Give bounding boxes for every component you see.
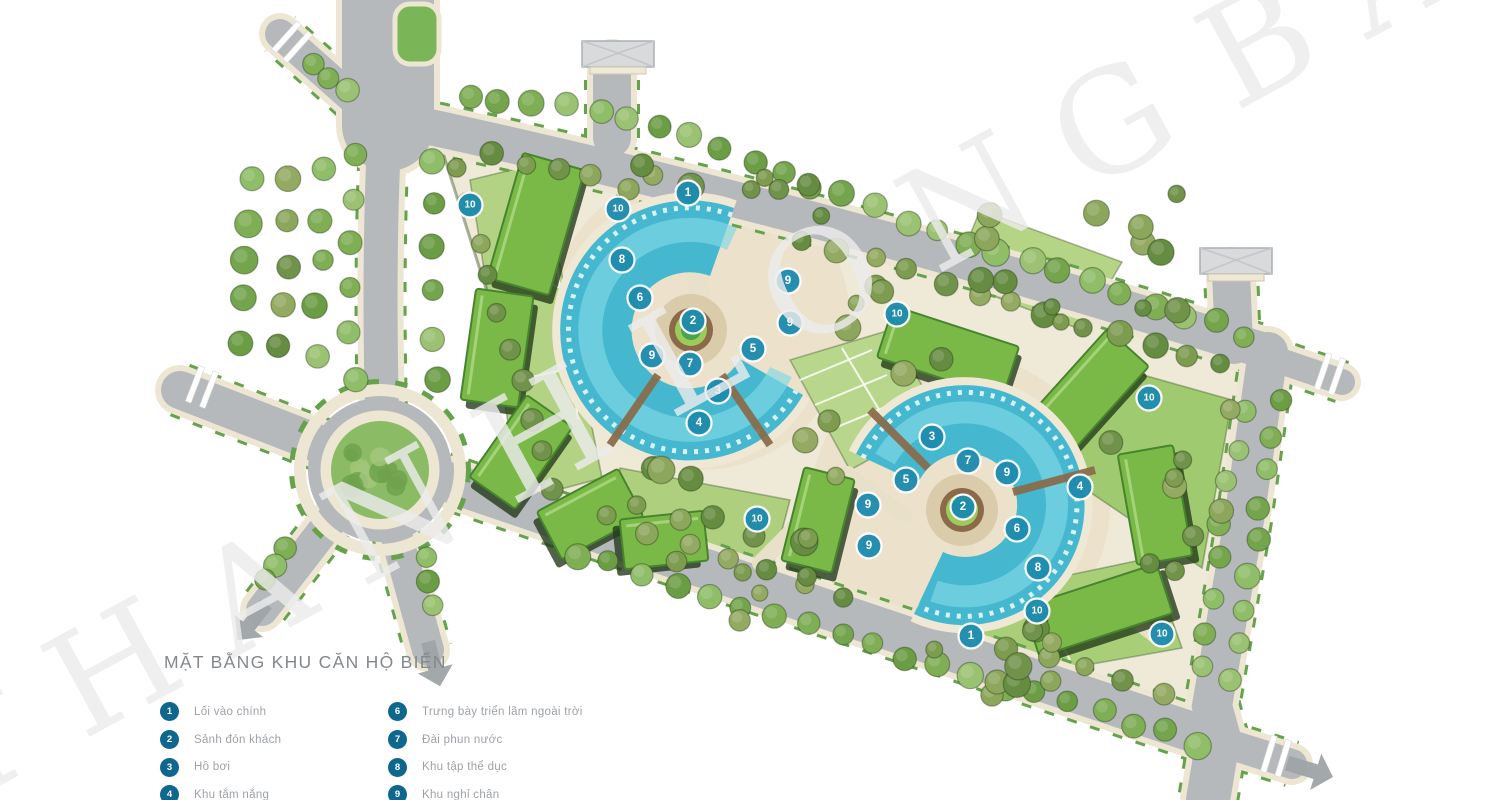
svg-text:9: 9: [866, 540, 872, 552]
svg-text:6: 6: [1014, 523, 1020, 535]
svg-text:3: 3: [929, 431, 935, 443]
plan-marker-9: 9: [857, 534, 882, 559]
plan-marker-1: 1: [676, 181, 701, 206]
svg-text:9: 9: [1004, 467, 1010, 479]
svg-text:10: 10: [1143, 393, 1155, 404]
plan-marker-10: 10: [1150, 622, 1175, 647]
svg-text:7: 7: [965, 455, 971, 467]
svg-text:2: 2: [960, 501, 966, 513]
plan-marker-7: 7: [956, 449, 981, 474]
plan-marker-2: 2: [951, 495, 976, 520]
svg-text:10: 10: [1031, 606, 1043, 617]
svg-text:10: 10: [751, 514, 763, 525]
plan-marker-9: 9: [856, 493, 881, 518]
svg-text:1: 1: [685, 187, 692, 199]
gate-pavilion-north: [582, 41, 654, 74]
plan-marker-1: 1: [959, 624, 984, 649]
gate-pavilion-east: [1200, 248, 1272, 281]
svg-text:4: 4: [1077, 481, 1084, 493]
svg-text:8: 8: [619, 254, 626, 266]
svg-text:10: 10: [464, 200, 476, 211]
plan-marker-8: 8: [610, 248, 635, 273]
site-plan-image: 101018699259734101037954291069810110 THA…: [0, 0, 1500, 800]
plan-marker-4: 4: [1068, 475, 1093, 500]
svg-text:1: 1: [968, 630, 975, 642]
svg-text:9: 9: [865, 499, 871, 511]
svg-text:5: 5: [903, 474, 910, 486]
svg-text:10: 10: [612, 204, 624, 215]
svg-text:10: 10: [1156, 629, 1168, 640]
site-plan-page: 101018699259734101037954291069810110 THA…: [0, 0, 1500, 800]
plan-marker-10: 10: [458, 193, 483, 218]
svg-text:8: 8: [1035, 562, 1042, 574]
plan-marker-10: 10: [745, 507, 770, 532]
plan-marker-9: 9: [995, 461, 1020, 486]
plan-marker-5: 5: [894, 468, 919, 493]
plan-marker-10: 10: [1025, 599, 1050, 624]
plan-marker-10: 10: [606, 197, 631, 222]
plan-marker-6: 6: [1005, 517, 1030, 542]
plan-marker-10: 10: [1137, 386, 1162, 411]
plan-marker-8: 8: [1026, 556, 1051, 581]
plan-marker-3: 3: [920, 425, 945, 450]
